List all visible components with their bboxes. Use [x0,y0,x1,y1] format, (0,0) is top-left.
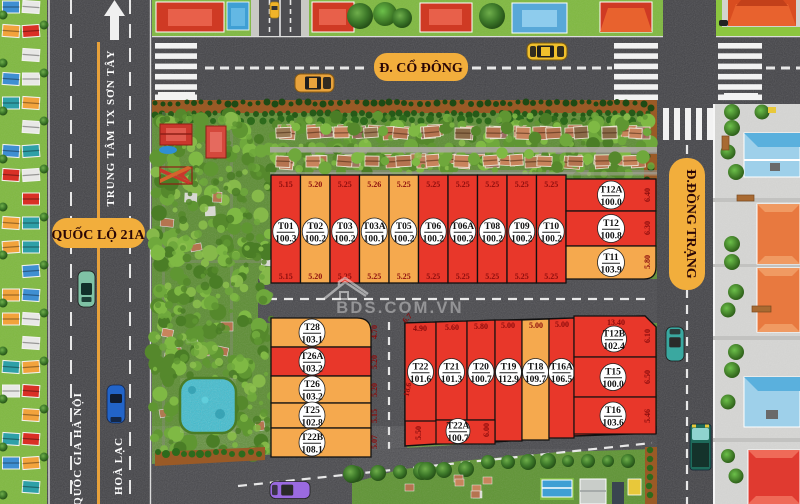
svg-text:100.2: 100.2 [452,235,474,245]
svg-text:103.1: 103.1 [301,336,323,346]
svg-text:T06A: T06A [451,222,474,232]
svg-text:T16A: T16A [550,363,573,373]
svg-text:5.15: 5.15 [279,180,293,189]
svg-text:102.8: 102.8 [301,419,323,429]
svg-text:5.25: 5.25 [426,180,440,189]
svg-text:T15: T15 [605,368,621,378]
svg-text:100.2: 100.2 [334,235,356,245]
svg-text:103.6: 103.6 [602,419,624,429]
svg-text:6.30: 6.30 [643,221,652,235]
svg-text:T22A: T22A [447,422,470,432]
svg-text:T19: T19 [501,363,517,373]
svg-text:13.40: 13.40 [607,318,625,327]
svg-text:T18: T18 [528,363,544,373]
svg-text:5.15: 5.15 [279,272,293,281]
svg-text:T09: T09 [514,222,530,232]
svg-text:5.80: 5.80 [474,322,488,331]
svg-text:5.25: 5.25 [426,272,440,281]
svg-text:5.80: 5.80 [643,255,652,269]
svg-text:109.7: 109.7 [525,375,547,385]
svg-text:5.00: 5.00 [501,321,515,330]
svg-text:101.3: 101.3 [441,375,463,385]
svg-text:5.20: 5.20 [308,180,322,189]
svg-text:T08: T08 [484,222,500,232]
svg-text:100.2: 100.2 [511,235,533,245]
svg-text:100.2: 100.2 [305,235,327,245]
svg-text:5.07: 5.07 [370,435,379,449]
svg-text:5.25: 5.25 [397,272,411,281]
svg-text:112.9: 112.9 [498,375,519,385]
svg-text:6.00: 6.00 [482,423,491,437]
svg-text:100.3: 100.3 [275,235,297,245]
svg-text:100.8: 100.8 [600,232,622,242]
svg-text:103.2: 103.2 [301,365,323,375]
svg-text:5.00: 5.00 [529,321,543,330]
svg-text:BDS.COM.VN: BDS.COM.VN [336,299,463,317]
svg-text:100.2: 100.2 [482,235,504,245]
svg-text:5.25: 5.25 [485,272,499,281]
svg-text:100.2: 100.2 [393,235,415,245]
svg-text:100.1: 100.1 [364,235,386,245]
svg-text:T28: T28 [304,323,320,333]
svg-text:T26: T26 [304,380,320,390]
svg-text:TRUNG TÂM TX SƠN TÂY: TRUNG TÂM TX SƠN TÂY [105,50,117,207]
svg-text:6.50: 6.50 [643,370,652,384]
svg-text:6.40: 6.40 [643,188,652,202]
svg-text:102.4: 102.4 [603,342,625,352]
svg-text:5.25: 5.25 [544,180,558,189]
svg-text:T10: T10 [543,222,559,232]
svg-text:Đ. CỔ ĐÔNG: Đ. CỔ ĐÔNG [379,58,463,76]
svg-text:5.00: 5.00 [555,320,569,329]
svg-text:103.2: 103.2 [301,393,323,403]
svg-text:103.9: 103.9 [600,266,622,276]
svg-text:5.15: 5.15 [370,409,379,423]
svg-text:QUỐC LỘ 21A: QUỐC LỘ 21A [51,225,145,243]
svg-text:T05: T05 [396,222,412,232]
svg-text:5.25: 5.25 [544,272,558,281]
svg-text:T26A: T26A [301,352,324,362]
svg-text:T02: T02 [307,222,323,232]
svg-text:T11: T11 [603,253,619,263]
svg-text:5.46: 5.46 [643,409,652,423]
svg-text:T21: T21 [444,363,460,373]
svg-text:106.5: 106.5 [551,375,573,385]
svg-text:5.25: 5.25 [515,272,529,281]
svg-text:5.25: 5.25 [397,180,411,189]
svg-text:T03: T03 [337,222,353,232]
svg-text:100.2: 100.2 [541,235,563,245]
svg-text:5.20: 5.20 [370,383,379,397]
svg-text:T12B: T12B [603,330,626,340]
svg-text:5.25: 5.25 [338,272,352,281]
svg-text:T20: T20 [473,363,489,373]
svg-text:5.60: 5.60 [445,323,459,332]
svg-text:4.70: 4.70 [370,325,379,339]
svg-text:T12: T12 [603,219,619,229]
svg-text:T22: T22 [413,363,429,373]
svg-text:5.25: 5.25 [367,272,381,281]
svg-text:T22B: T22B [301,433,324,443]
svg-text:5.50: 5.50 [414,426,423,440]
svg-text:5.25: 5.25 [485,180,499,189]
svg-text:T01: T01 [278,222,294,232]
svg-text:HOÀ LẠC: HOÀ LẠC [113,437,125,495]
svg-text:4.90: 4.90 [413,324,427,333]
svg-text:T03A: T03A [363,222,386,232]
svg-text:Đ.ĐỒNG TRẠNG: Đ.ĐỒNG TRẠNG [683,169,701,279]
svg-text:5.25: 5.25 [456,272,470,281]
svg-text:6.10: 6.10 [643,329,652,343]
svg-text:5.25: 5.25 [456,180,470,189]
svg-text:5.25: 5.25 [338,180,352,189]
svg-text:5.20: 5.20 [308,272,322,281]
svg-text:5.25: 5.25 [515,180,529,189]
svg-text:T12A: T12A [600,186,623,196]
svg-text:100.7: 100.7 [447,434,469,444]
svg-text:100.0: 100.0 [600,198,622,208]
svg-text:5.26: 5.26 [367,180,381,189]
svg-text:108.1: 108.1 [301,446,323,456]
svg-text:5.20: 5.20 [370,355,379,369]
svg-text:100.2: 100.2 [423,235,445,245]
svg-text:T06: T06 [425,222,441,232]
svg-text:100.0: 100.0 [602,380,624,390]
svg-text:QUỐC GIA HÀ NỘI: QUỐC GIA HÀ NỘI [71,392,84,504]
svg-text:T25: T25 [304,406,320,416]
svg-text:100.7: 100.7 [470,375,492,385]
svg-text:T16: T16 [605,406,621,416]
